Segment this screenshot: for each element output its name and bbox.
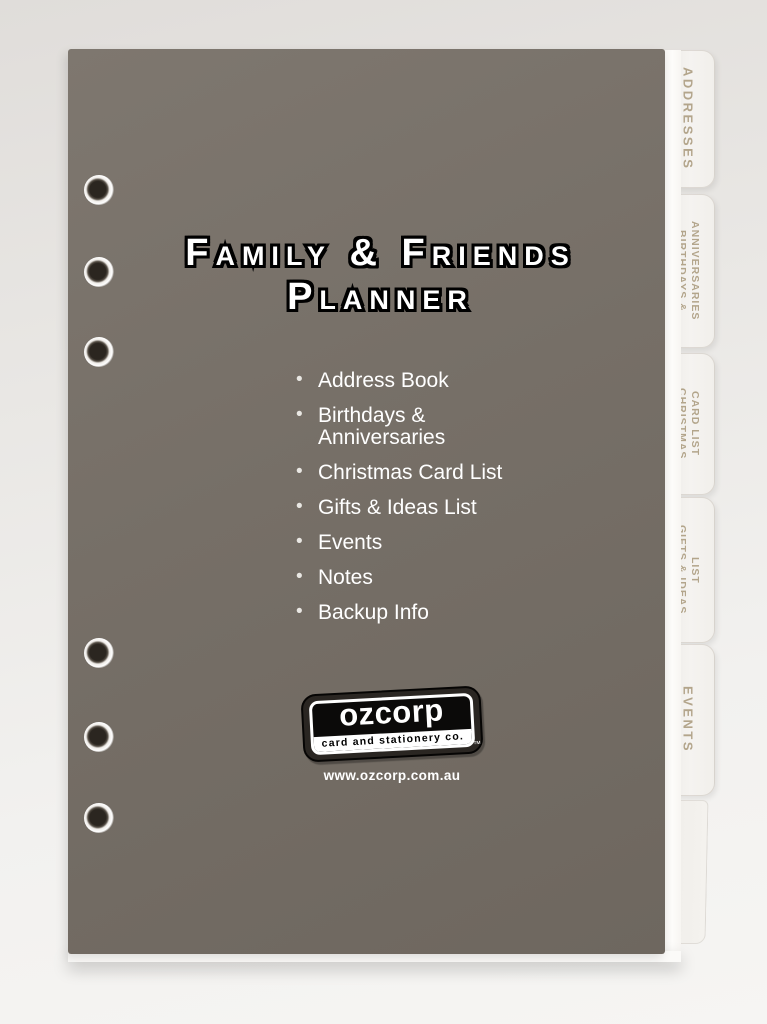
cover-title-line2: Planner [96, 275, 665, 319]
product-photo: ADDRESSES BIRTHDAYS & ANNIVERSARIES CHRI… [0, 0, 767, 1024]
tab-events-label: EVENTS [681, 686, 696, 753]
contents-item: Gifts & Ideas List [296, 497, 511, 519]
ozcorp-logo: ozcorp card and stationery co. ™ [300, 685, 483, 762]
tab-line: CARD LIST [688, 388, 701, 459]
binder-hole [84, 803, 114, 833]
ozcorp-logo-inner: ozcorp card and stationery co. [309, 693, 476, 756]
tab-addresses-label: ADDRESSES [681, 67, 696, 170]
trademark-symbol: ™ [473, 739, 481, 748]
binder-hole [84, 175, 114, 205]
website-url: www.ozcorp.com.au [302, 768, 482, 783]
contents-item: Backup Info [296, 602, 511, 624]
binder-hole [84, 638, 114, 668]
contents-item: Birthdays & Anniversaries [296, 405, 511, 449]
binder-hole [84, 337, 114, 367]
contents-item: Address Book [296, 370, 511, 392]
tab-line: LIST [688, 525, 701, 614]
contents-item: Events [296, 532, 511, 554]
contents-item: Notes [296, 567, 511, 589]
tab-line: ADDRESSES [681, 67, 696, 170]
contents-list: Address Book Birthdays & Anniversaries C… [296, 370, 511, 637]
planner-cover: Family & Friends Planner Address Book Bi… [68, 49, 665, 954]
cover-title-line1: Family & Friends [96, 231, 665, 275]
tab-line: ANNIVERSARIES [688, 221, 701, 320]
contents-item: Christmas Card List [296, 462, 511, 484]
cover-title: Family & Friends Planner [68, 231, 665, 319]
tab-line: EVENTS [681, 686, 696, 753]
binder-hole [84, 722, 114, 752]
